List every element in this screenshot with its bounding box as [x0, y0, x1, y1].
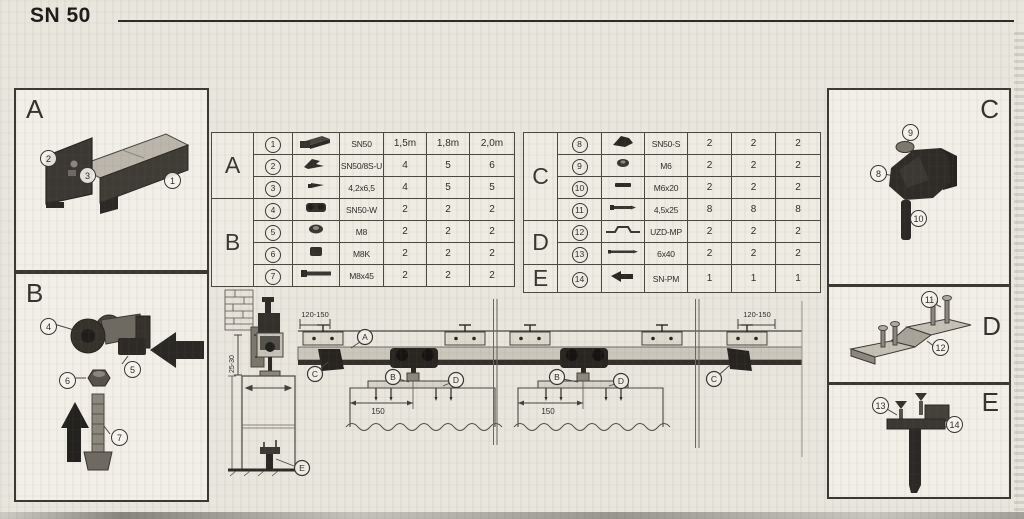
part-name-cell: M6x20: [645, 177, 688, 199]
qty-cell: 2: [470, 199, 515, 221]
qty-cell: 2: [732, 243, 776, 265]
section-b-cell: B: [212, 199, 254, 287]
part-name-cell: M8K: [340, 243, 384, 265]
qty-cell: 4: [384, 155, 427, 177]
callout-4: 4: [40, 318, 57, 335]
screw-icon: [603, 199, 643, 215]
panel-b: B 4 5 6 7: [14, 272, 209, 502]
part-number: 8: [572, 137, 588, 153]
panel-b-label: B: [26, 280, 43, 306]
callout-11: 11: [921, 291, 938, 308]
table-row: A 1 SN50 1,5m 1,8m 2,0m: [212, 133, 515, 155]
screw-small-icon: [296, 177, 336, 193]
panel-e-label: E: [982, 389, 999, 415]
floor-guide-section: [260, 440, 280, 469]
panel-c-label: C: [980, 96, 999, 122]
part-number: 11: [572, 203, 588, 219]
part-name-cell: M8x45: [340, 265, 384, 287]
part-name-cell: 6x40: [645, 243, 688, 265]
qty-cell: 2: [776, 221, 821, 243]
qty-cell: 2: [776, 177, 821, 199]
qty-cell: 2: [688, 243, 732, 265]
qty-cell: 2: [427, 221, 470, 243]
section-d-cell: D: [524, 221, 558, 265]
qty-cell: 2: [427, 199, 470, 221]
qty-cell: 2: [688, 221, 732, 243]
callout-5: 5: [124, 361, 141, 378]
part-number: 7: [265, 269, 281, 285]
table-row: 3 4,2x6,5 4 5 5: [212, 177, 515, 199]
qty-cell: 2: [427, 265, 470, 287]
part-name-cell: M8: [340, 221, 384, 243]
table-row: 6 M8K 2 2 2: [212, 243, 515, 265]
callout-b1: B: [390, 372, 396, 382]
brick-wall: [225, 290, 253, 330]
instruction-sheet: SN 50 A 2 3 1: [0, 0, 1024, 519]
part-number: 10: [572, 181, 588, 197]
qty-cell: 2: [688, 155, 732, 177]
part-number: 13: [572, 247, 588, 263]
dim-overhang-left: 120-150: [301, 310, 329, 319]
qty-cell: 4: [384, 177, 427, 199]
table-row: 10 M6x20 2 2 2: [524, 177, 821, 199]
wall-clearance-dim: 25-30: [229, 335, 242, 375]
qty-cell: 2: [688, 177, 732, 199]
nut-icon: [296, 221, 336, 237]
qty-cell: 2: [384, 199, 427, 221]
callout-12: 12: [932, 339, 949, 356]
section-c-cell: C: [524, 133, 558, 221]
callout-9: 9: [902, 124, 919, 141]
panel-c: C 9 8 10: [827, 88, 1011, 286]
qty-cell: 2: [470, 221, 515, 243]
qty-cell: 2: [776, 155, 821, 177]
table-row: 7 M8x45 2 2 2: [212, 265, 515, 287]
part-name-cell: 4,5x25: [645, 199, 688, 221]
qty-cell: 5: [470, 177, 515, 199]
qty-cell: 2: [384, 265, 427, 287]
track-rail-bottom: [298, 360, 802, 365]
overhang-dim-right: 120-150: [738, 310, 775, 329]
table-row: C 8 SN50-S 2 2 2: [524, 133, 821, 155]
panel-a-label: A: [26, 96, 43, 122]
dim-overhang-right: 120-150: [743, 310, 771, 319]
stopper-icon: [603, 133, 643, 149]
qty-cell: 2: [470, 243, 515, 265]
qty-cell: 2,0m: [470, 133, 515, 155]
parts-table-right: C 8 SN50-S 2 2 2 9 M6 2 2 2 10 M6x20 2: [523, 132, 821, 293]
door-1-break-line: [346, 424, 502, 431]
end-stop: [727, 348, 752, 371]
table-row: 2 SN50/8S-U 4 5 6: [212, 155, 515, 177]
callout-10: 10: [910, 210, 927, 227]
panel-d: D 11 12: [827, 285, 1011, 384]
qty-cell: 2: [776, 243, 821, 265]
scan-bottom-shadow: [0, 512, 1024, 519]
callout-c-left: C: [312, 369, 318, 379]
roller-assembly-illustration: [16, 274, 207, 500]
panel-a: A 2 3 1: [14, 88, 209, 272]
cap-nut-icon: [296, 243, 336, 259]
stud-icon: [603, 177, 643, 193]
part-number: 3: [265, 181, 281, 197]
callout-e: E: [299, 463, 305, 473]
part-number: 2: [265, 159, 281, 175]
door-width-arrow: [246, 386, 291, 391]
title-rule: [118, 20, 1014, 22]
scan-edge-noise: [1014, 30, 1024, 511]
callout-3: 3: [79, 167, 96, 184]
callout-1: 1: [164, 172, 181, 189]
table-row: D 12 UZD-MP 2 2 2: [524, 221, 821, 243]
qty-cell: 2: [384, 243, 427, 265]
parts-table-left: A 1 SN50 1,5m 1,8m 2,0m 2 SN50/8S-U 4 5 …: [211, 132, 515, 287]
qty-cell: 2: [732, 221, 776, 243]
part-number: 6: [265, 247, 281, 263]
callout-7: 7: [111, 429, 128, 446]
qty-cell: 2: [470, 265, 515, 287]
part-name-cell: M6: [645, 155, 688, 177]
opening-edge-lines: [494, 299, 803, 457]
part-number: 4: [265, 203, 281, 219]
callout-c-right: C: [711, 374, 717, 384]
dim-150-door2: 150: [541, 407, 555, 416]
floor-guide-icon: [603, 268, 643, 284]
qty-cell: 2: [732, 177, 776, 199]
qty-cell: 2: [732, 155, 776, 177]
callout-b2: B: [554, 372, 560, 382]
qty-cell: 6: [470, 155, 515, 177]
callout-8: 8: [870, 165, 887, 182]
callout-a: A: [362, 332, 368, 342]
qty-cell: 8: [776, 199, 821, 221]
overhang-dim-left: 120-150: [300, 310, 330, 329]
qty-cell: 5: [427, 155, 470, 177]
callout-d1: D: [453, 375, 459, 385]
nut-icon: [603, 155, 643, 171]
part-number: 9: [572, 159, 588, 175]
rail-profile-icon: [296, 133, 336, 149]
table-row: 13 6x40 2 2 2: [524, 243, 821, 265]
panel-d-label: D: [982, 313, 1001, 339]
table-row: B 4 SN50-W 2 2 2: [212, 199, 515, 221]
qty-cell: 2: [427, 243, 470, 265]
part-name-cell: SN50-W: [340, 199, 384, 221]
section-a-cell: A: [212, 133, 254, 199]
qty-cell: 2: [384, 221, 427, 243]
qty-cell: 1,8m: [427, 133, 470, 155]
roller-carriage-icon: [296, 199, 336, 215]
part-name-cell: SN50: [340, 133, 384, 155]
table-row: 11 4,5x25 8 8 8: [524, 199, 821, 221]
guide-profile-icon: [603, 221, 643, 237]
page-title: SN 50: [30, 4, 91, 28]
qty-cell: 2: [688, 133, 732, 155]
door-height-dim: [228, 376, 236, 470]
qty-cell: 5: [427, 177, 470, 199]
mounting-clip-icon: [296, 155, 336, 171]
part-name-cell: SN50-S: [645, 133, 688, 155]
dim-wall-clearance: 25-30: [229, 355, 236, 373]
part-number: 12: [572, 225, 588, 241]
qty-cell: 8: [732, 199, 776, 221]
screw-long-icon: [603, 243, 643, 259]
callout-2: 2: [40, 150, 57, 167]
callout-6: 6: [59, 372, 76, 389]
qty-cell: 2: [732, 133, 776, 155]
panel-e: E 13 14: [827, 383, 1011, 499]
callout-d2: D: [618, 376, 624, 386]
part-name-cell: 4,2x6,5: [340, 177, 384, 199]
table-row: 5 M8 2 2 2: [212, 221, 515, 243]
dim-150-door1: 150: [371, 407, 385, 416]
part-number: 1: [265, 137, 281, 153]
table-row: 9 M6 2 2 2: [524, 155, 821, 177]
hex-bolt-icon: [296, 265, 336, 281]
part-name-cell: UZD-MP: [645, 221, 688, 243]
qty-cell: 8: [688, 199, 732, 221]
part-name-cell: SN50/8S-U: [340, 155, 384, 177]
door-2: [518, 388, 663, 427]
callout-14: 14: [946, 416, 963, 433]
assembly-drawing: 25-30 E: [210, 285, 830, 505]
callout-13: 13: [872, 397, 889, 414]
qty-cell: 2: [776, 133, 821, 155]
track-rail: [298, 347, 802, 360]
part-number: 5: [265, 225, 281, 241]
qty-cell: 1,5m: [384, 133, 427, 155]
door-2-break-line: [514, 424, 670, 431]
